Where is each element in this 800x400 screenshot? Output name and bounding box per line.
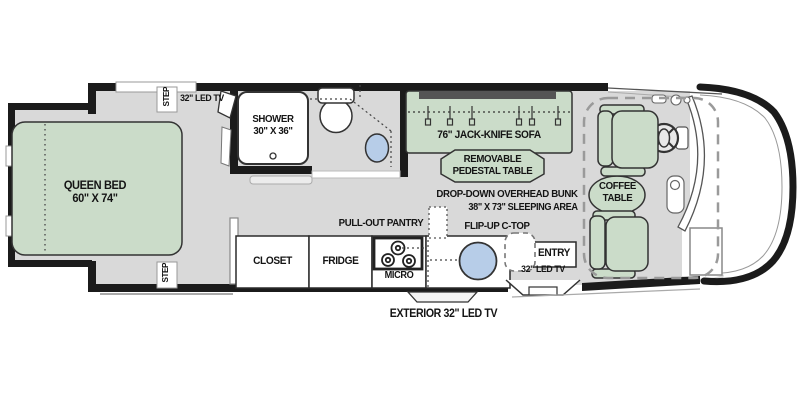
bunk-label-line1: DROP-DOWN OVERHEAD BUNK	[431, 189, 584, 201]
kitchen-sink	[460, 243, 497, 280]
exterior-tv-icon	[408, 292, 477, 302]
bunk-label-line2: 38" X 73" SLEEPING AREA	[448, 202, 599, 213]
slideout-wall	[8, 103, 92, 110]
rv-floorplan: QUEEN BED 60" X 74" STEP STEP 32" LED TV…	[0, 0, 800, 400]
fridge-label: FRIDGE	[312, 255, 370, 267]
queen-bed-label: QUEEN BED 60" X 74"	[44, 179, 145, 206]
vanity-base	[312, 171, 400, 178]
pedestal-table-label: REMOVABLE PEDESTAL TABLE	[445, 154, 540, 178]
entry-step-tread	[529, 287, 557, 295]
shower-step	[250, 176, 312, 184]
coffee-line1: COFFEE	[591, 181, 643, 193]
shower-size: 30" X 36"	[242, 126, 305, 138]
shower-name: SHOWER	[242, 114, 305, 126]
sofa-back-band	[419, 91, 556, 99]
queen-bed-size: 60" X 74"	[44, 192, 145, 205]
toilet-bowl	[320, 100, 352, 133]
toilet-tank	[318, 88, 354, 103]
step-bottom-label: STEP	[161, 260, 171, 285]
micro-label: MICRO	[375, 270, 423, 281]
flip-up-ctop-label: FLIP-UP C-TOP	[457, 221, 536, 233]
step-top-label: STEP	[162, 84, 172, 109]
pedestal-line2: PEDESTAL TABLE	[445, 166, 540, 178]
coffee-table-label: COFFEE TABLE	[591, 181, 643, 205]
exterior-tv-label: EXTERIOR 32" LED TV	[386, 308, 501, 321]
shower-label: SHOWER 30" X 36"	[242, 114, 305, 138]
bedroom-tv-label: 32" LED TV	[175, 94, 228, 105]
sofa-label: 76" JACK-KNIFE SOFA	[414, 129, 565, 141]
coffee-line2: TABLE	[591, 193, 643, 205]
bath-door	[221, 127, 231, 166]
passenger-seat	[590, 211, 648, 278]
queen-bed-name: QUEEN BED	[44, 179, 145, 192]
shower-drain	[270, 153, 276, 159]
center-console	[667, 176, 684, 213]
driver-seat	[598, 105, 658, 176]
closet-label: CLOSET	[239, 255, 306, 267]
entry-tv-label: 32" LED TV	[514, 265, 571, 276]
bathroom-sink	[366, 134, 389, 162]
dash-gauge	[671, 95, 681, 105]
bedroom-window	[116, 82, 196, 92]
pullout-pantry-outline	[429, 207, 447, 238]
pedestal-line1: REMOVABLE	[445, 154, 540, 166]
engine-cover	[690, 228, 722, 275]
pantry-label: PULL-OUT PANTRY	[339, 218, 423, 230]
entry-label: ENTRY	[534, 247, 574, 259]
